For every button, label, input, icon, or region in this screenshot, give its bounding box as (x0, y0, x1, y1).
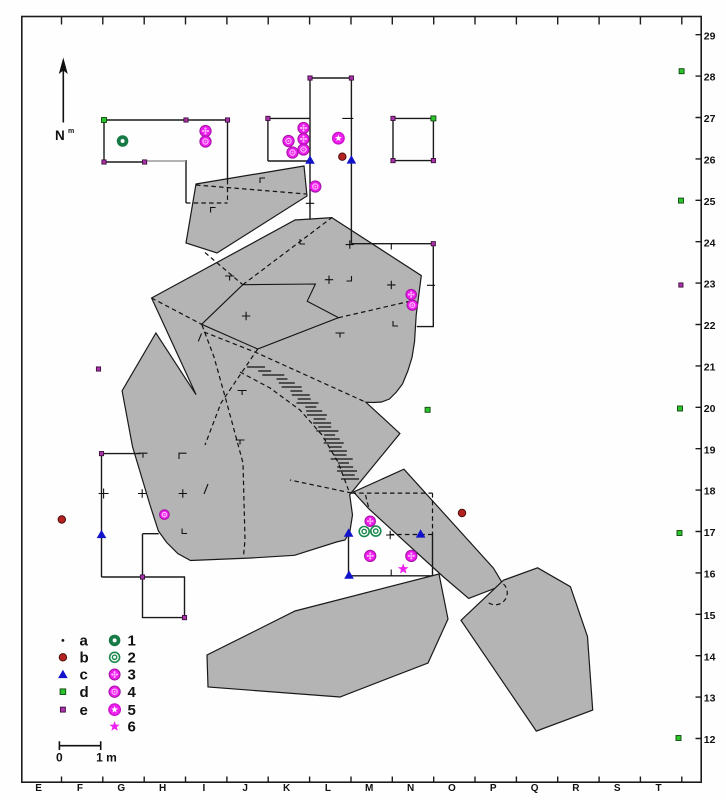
svg-text:4: 4 (128, 684, 137, 701)
svg-text:6: 6 (128, 719, 136, 736)
svg-text:5: 5 (128, 702, 136, 719)
svg-text:F: F (77, 783, 83, 794)
svg-text:12: 12 (704, 734, 716, 746)
svg-text:a: a (80, 633, 89, 650)
svg-text:b: b (80, 650, 89, 667)
svg-text:14: 14 (704, 651, 716, 663)
svg-text:G: G (117, 783, 125, 794)
svg-text:1 m: 1 m (96, 751, 117, 765)
svg-text:I: I (203, 783, 206, 794)
svg-text:22: 22 (704, 320, 716, 332)
svg-text:R: R (572, 783, 580, 794)
svg-text:d: d (80, 684, 89, 701)
svg-text:N: N (55, 128, 65, 143)
svg-text:21: 21 (704, 362, 716, 374)
svg-text:26: 26 (704, 155, 716, 167)
svg-text:E: E (35, 783, 42, 794)
svg-text:20: 20 (704, 403, 716, 415)
svg-text:19: 19 (704, 444, 716, 456)
svg-text:1: 1 (128, 633, 136, 650)
svg-text:0: 0 (56, 751, 63, 765)
svg-text:28: 28 (704, 72, 716, 84)
svg-text:H: H (159, 783, 166, 794)
svg-text:13: 13 (704, 693, 716, 705)
svg-text:O: O (448, 783, 456, 794)
svg-text:e: e (80, 702, 88, 719)
svg-text:P: P (490, 783, 497, 794)
svg-text:J: J (242, 783, 248, 794)
svg-text:S: S (614, 783, 621, 794)
svg-text:c: c (80, 667, 88, 684)
svg-text:29: 29 (704, 30, 716, 42)
svg-text:T: T (655, 783, 661, 794)
svg-text:25: 25 (704, 196, 716, 208)
svg-text:N: N (407, 783, 414, 794)
svg-text:17: 17 (704, 527, 716, 539)
svg-text:15: 15 (704, 610, 716, 622)
svg-text:K: K (283, 783, 291, 794)
svg-text:24: 24 (704, 237, 716, 249)
svg-text:m: m (68, 128, 74, 135)
svg-text:2: 2 (128, 650, 136, 667)
svg-text:27: 27 (704, 113, 716, 125)
svg-text:M: M (365, 783, 373, 794)
svg-text:23: 23 (704, 279, 716, 291)
svg-text:18: 18 (704, 486, 716, 498)
svg-text:16: 16 (704, 569, 716, 581)
svg-text:3: 3 (128, 667, 136, 684)
svg-text:Q: Q (531, 783, 539, 794)
svg-text:L: L (325, 783, 331, 794)
